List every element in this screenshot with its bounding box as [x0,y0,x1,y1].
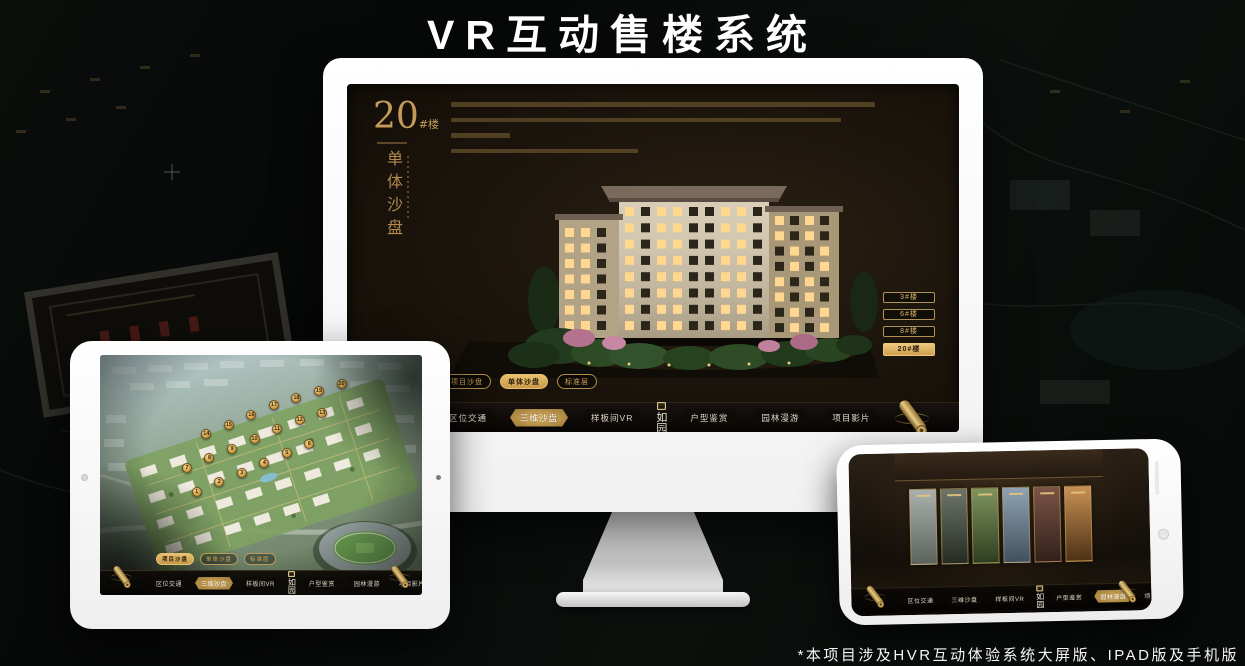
nav-item-3d-sandtable[interactable]: 三维沙盘 [945,592,983,606]
tab-single-sandtable[interactable]: 单体沙盘 [500,374,548,389]
building-headline: 20#楼 [373,96,439,137]
building-8-button[interactable]: 8#楼 [883,326,935,337]
nav-item-floorplans[interactable]: 户型鉴赏 [1050,590,1088,604]
tablet-screen: 1234567891011121314151617181920 项目沙盘 单体沙… [100,355,422,595]
building-marker[interactable]: 10 [250,434,260,444]
building-render [439,150,889,395]
monitor-base [556,592,750,607]
building-marker[interactable]: 6 [304,439,314,449]
brand-logo[interactable]: 如园 [288,571,296,595]
phone-gallery [909,485,1093,565]
gallery-panel[interactable] [1033,486,1062,563]
phone-camera [1158,529,1169,540]
scroll-menu-icon[interactable] [893,400,933,433]
building-marker[interactable]: 20 [337,379,347,389]
description-text-lines [451,102,875,153]
nav-item-project-video[interactable]: 项目影片 [822,409,880,427]
section-title-vertical: 单体沙盘 [381,150,405,242]
tablet-nav-bar: 区位交通 三维沙盘 样板间VR 如园 户型鉴赏 园林漫游 项目影片 [100,570,422,595]
nav-item-floorplans[interactable]: 户型鉴赏 [680,409,738,427]
building-marker[interactable]: 16 [246,410,256,420]
brand-logo[interactable]: 如园 [1036,585,1045,609]
brand-logo-text: 如园 [656,412,667,433]
phone-screen: 区位交通 三维沙盘 样板间VR 如园 户型鉴赏 园林漫游 项目影片 [848,448,1151,616]
tablet-device: 1234567891011121314151617181920 项目沙盘 单体沙… [70,341,450,629]
gallery-panel[interactable] [1002,487,1031,564]
building-marker[interactable]: 2 [214,477,224,487]
building-marker[interactable]: 5 [282,448,292,458]
building-marker[interactable]: 9 [227,444,237,454]
building-marker[interactable]: 3 [237,468,247,478]
nav-item-location[interactable]: 区位交通 [150,577,188,590]
interior-lintel [894,449,1103,481]
building-marker[interactable]: 18 [291,393,301,403]
tab-project-sandtable[interactable]: 项目沙盘 [156,553,194,565]
building-marker[interactable]: 4 [259,458,269,468]
scroll-menu-icon[interactable] [1115,580,1140,603]
nav-item-3d-sandtable[interactable]: 三维沙盘 [195,577,233,590]
building-marker[interactable]: 13 [317,408,327,418]
nav-item-garden-tour[interactable]: 园林漫游 [751,409,809,427]
seal-icon [1037,585,1044,591]
building-3-button[interactable]: 3#楼 [883,292,935,303]
nav-item-model-room-vr[interactable]: 样板间VR [989,591,1030,605]
seal-icon [657,402,666,410]
nav-item-garden-tour[interactable]: 园林漫游 [348,577,386,590]
brand-logo[interactable]: 如园 [656,402,667,433]
building-number: 20 [373,96,419,137]
screenshot-root: VR互动售楼系统 20#楼 单体沙盘 [0,0,1245,666]
headline-rule [377,142,407,144]
scroll-menu-icon[interactable] [863,585,888,608]
building-marker[interactable]: 17 [269,400,279,410]
scroll-menu-icon[interactable] [388,566,413,588]
building-20-button[interactable]: 20#楼 [883,343,935,356]
section-title-english-deco [407,156,409,218]
building-marker[interactable]: 11 [272,424,282,434]
gallery-panel[interactable] [940,488,969,565]
view-tabs: 项目沙盘 单体沙盘 标准层 [443,374,597,389]
tab-project-sandtable[interactable]: 项目沙盘 [443,374,491,389]
building-marker[interactable]: 7 [182,463,192,473]
gallery-panel[interactable] [909,489,938,566]
nav-item-project-video[interactable]: 项目影片 [1138,588,1152,602]
phone-speaker [1155,461,1160,495]
building-marker[interactable]: 8 [204,453,214,463]
tablet-camera [81,474,88,481]
nav-item-model-room-vr[interactable]: 样板间VR [581,409,643,427]
footnote-text: *本项目涉及HVR互动体验系统大屏版、IPAD版及手机版 [798,644,1239,665]
scroll-menu-icon[interactable] [110,566,135,588]
tablet-side-dot [436,475,441,480]
building-marker[interactable]: 14 [201,429,211,439]
page-title: VR互动售楼系统 [0,1,1245,61]
tab-standard-floor[interactable]: 标准层 [557,374,597,389]
nav-item-3d-sandtable[interactable]: 三维沙盘 [510,409,568,427]
phone-nav-bar: 区位交通 三维沙盘 样板间VR 如园 户型鉴赏 园林漫游 项目影片 [851,582,1151,613]
building-6-button[interactable]: 6#楼 [883,309,935,320]
gallery-panel[interactable] [1064,485,1093,562]
building-number-suffix: #楼 [419,118,439,131]
nav-item-floorplans[interactable]: 户型鉴赏 [303,577,341,590]
nav-item-model-room-vr[interactable]: 样板间VR [240,577,281,590]
seal-icon [288,571,295,577]
building-marker[interactable]: 1 [192,487,202,497]
building-marker[interactable]: 19 [314,386,324,396]
tablet-view-tabs: 项目沙盘 单体沙盘 标准层 [156,553,276,565]
brand-logo-text: 如园 [288,579,296,595]
tab-single-sandtable[interactable]: 单体沙盘 [200,553,238,565]
tab-standard-floor[interactable]: 标准层 [244,553,276,565]
phone-device: 区位交通 三维沙盘 样板间VR 如园 户型鉴赏 园林漫游 项目影片 [836,438,1184,625]
building-selector: 3#楼 6#楼 8#楼 20#楼 [883,292,939,362]
nav-item-location[interactable]: 区位交通 [901,593,939,607]
gallery-panel[interactable] [971,487,1000,564]
building-marker[interactable]: 12 [295,415,305,425]
building-marker[interactable]: 15 [224,420,234,430]
brand-logo-text: 如园 [1036,593,1044,609]
